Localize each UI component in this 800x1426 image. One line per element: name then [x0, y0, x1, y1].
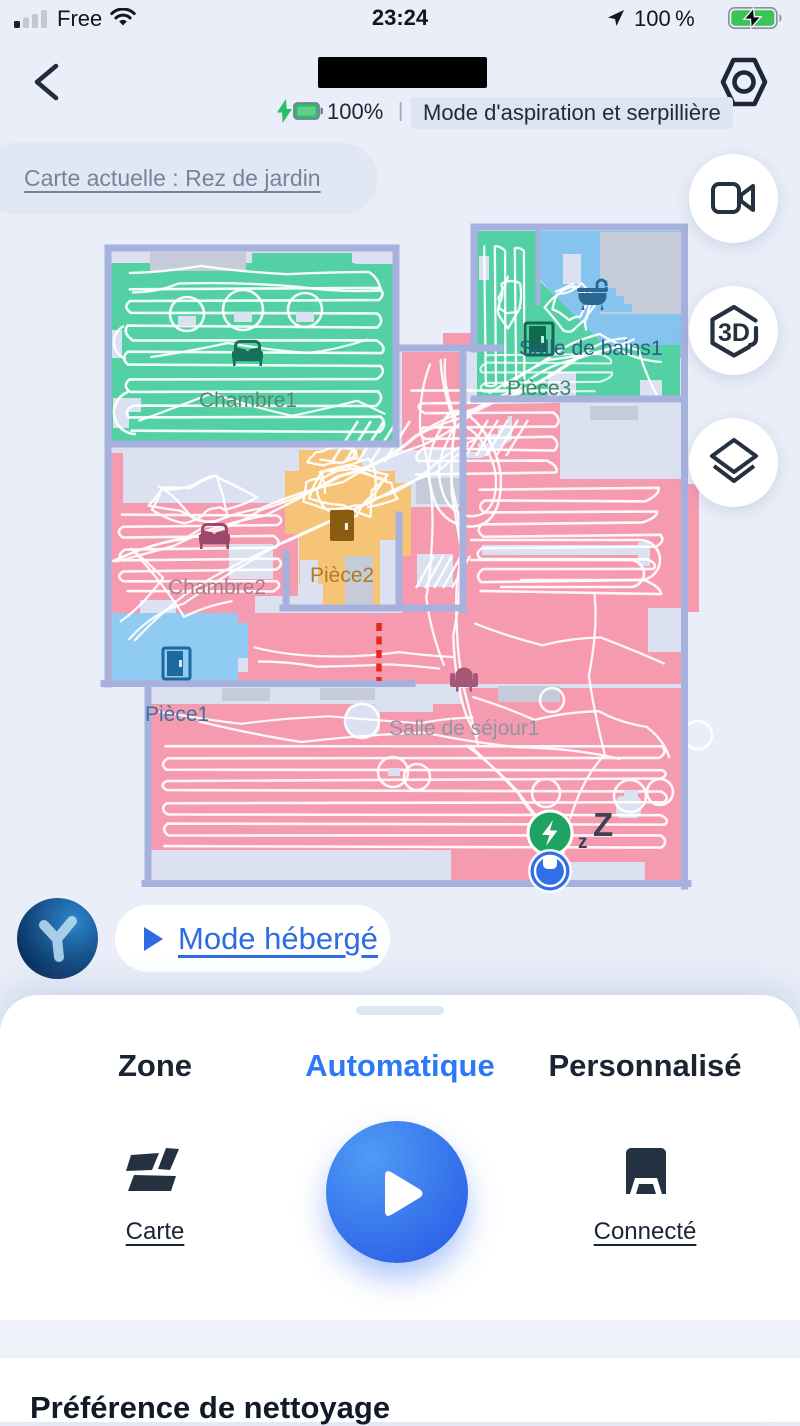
svg-text:Salle de bains1: Salle de bains1: [519, 337, 663, 360]
svg-text:Salle de séjour1: Salle de séjour1: [389, 717, 540, 740]
svg-text:Pièce1: Pièce1: [145, 703, 209, 726]
svg-text:Chambre1: Chambre1: [199, 389, 297, 412]
svg-text:Pièce2: Pièce2: [310, 564, 374, 587]
svg-text:Pièce3: Pièce3: [507, 377, 571, 400]
svg-text:Z: Z: [593, 806, 613, 843]
svg-text:Chambre2: Chambre2: [168, 576, 266, 599]
svg-text:z: z: [578, 832, 588, 853]
svg-text:3D: 3D: [718, 319, 750, 347]
